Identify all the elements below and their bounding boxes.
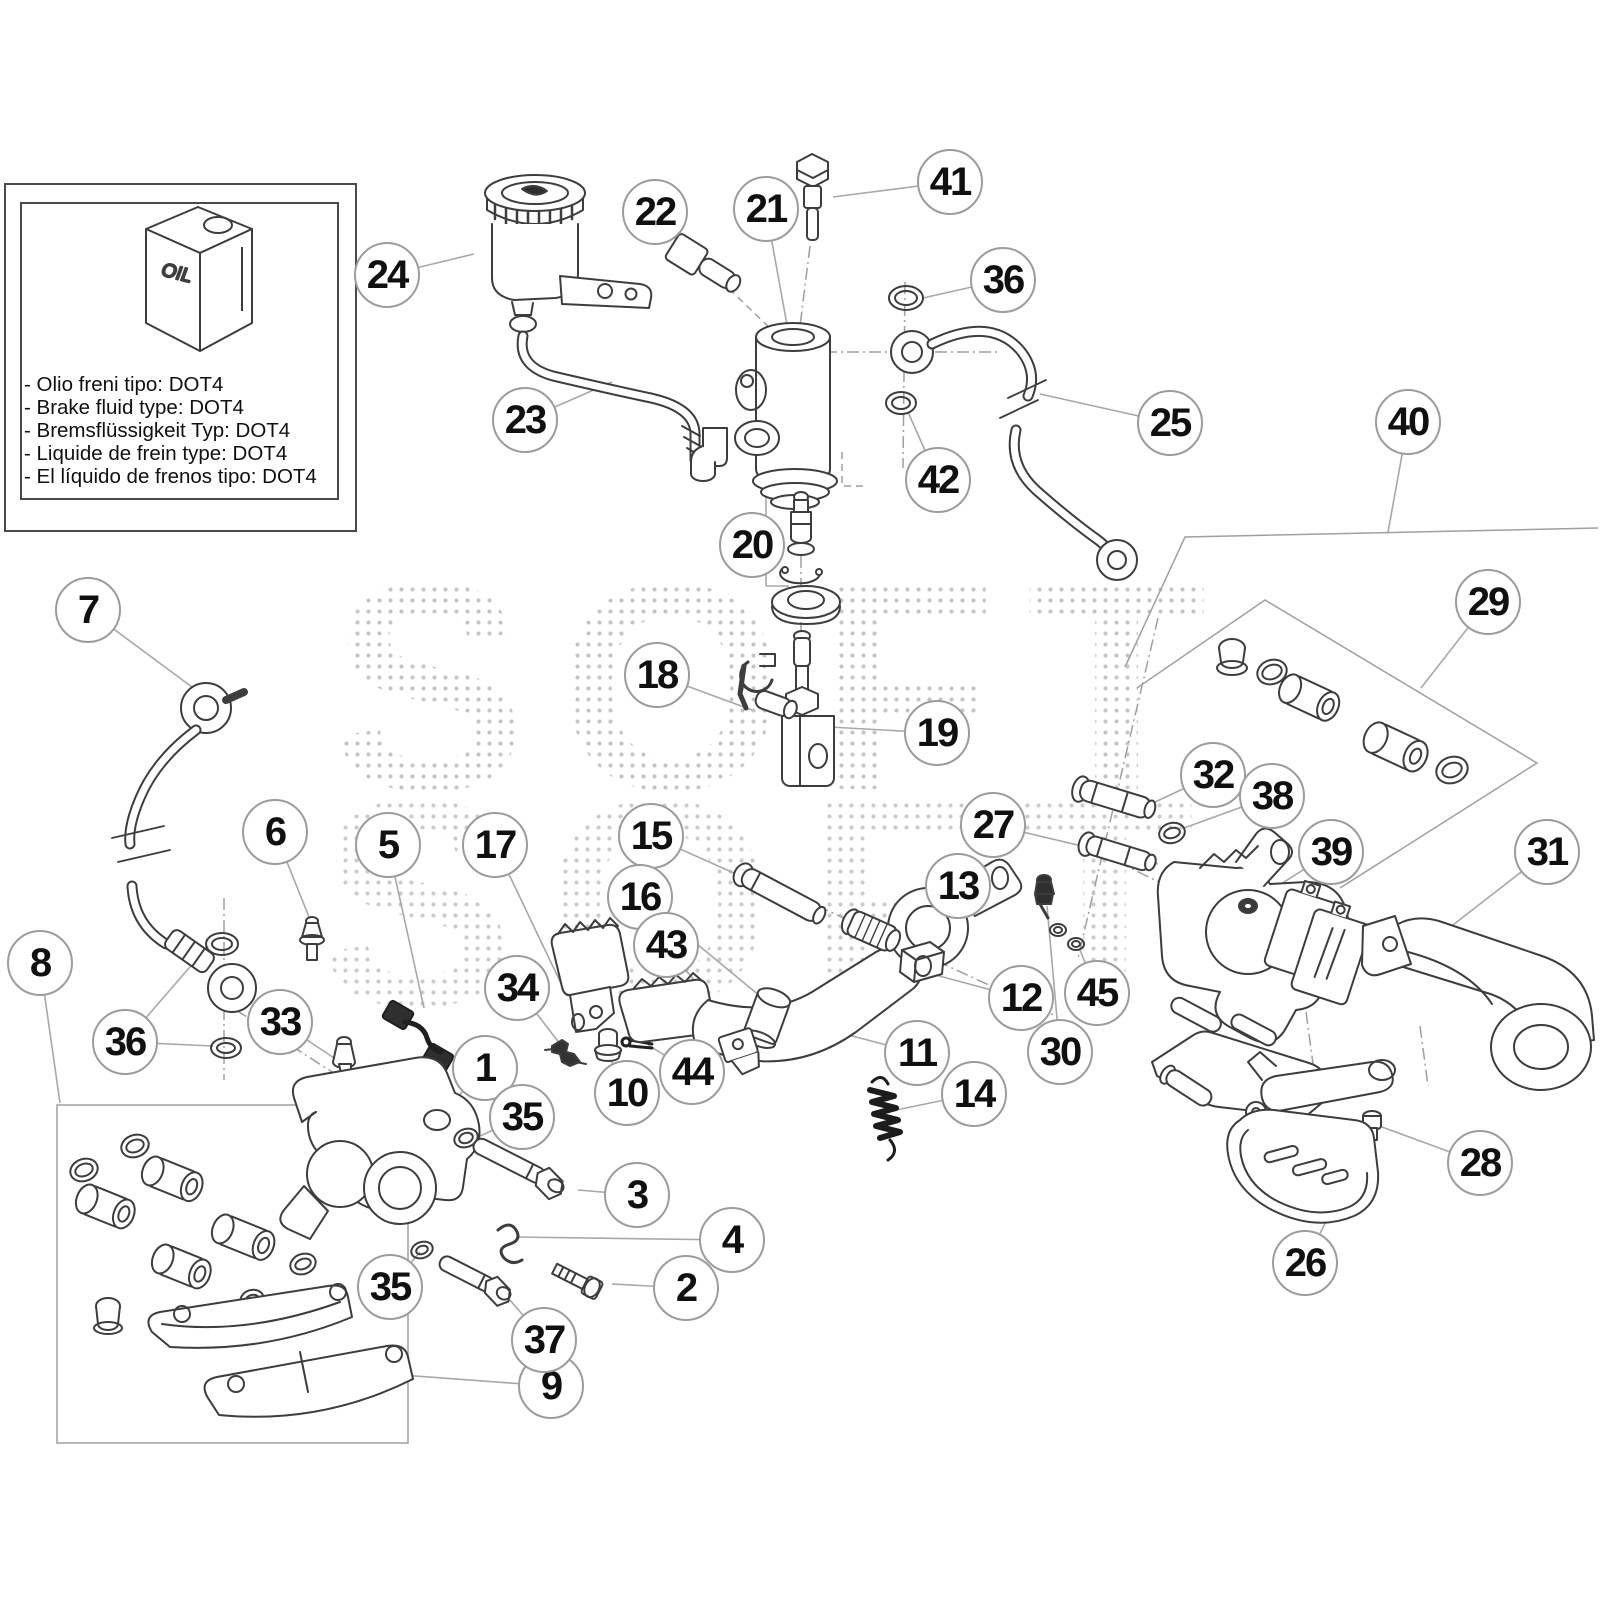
callout-35: 35 [489,1084,555,1150]
note-line: - El líquido de frenos tipo: DOT4 [24,465,324,488]
bolt-41 [797,154,828,240]
return-spring-14 [870,1077,900,1160]
callout-10: 10 [594,1060,660,1126]
callout-28: 28 [1447,1130,1513,1196]
callout-13: 13 [925,853,991,919]
callout-36: 36 [970,247,1036,313]
seal-kit-29-parts [1217,639,1471,788]
note-line: - Brake fluid type: DOT4 [24,396,324,419]
callout-26: 26 [1272,1230,1338,1296]
callout-12: 12 [988,965,1054,1031]
switch-30 [1035,875,1054,918]
pedal-tip-17 [552,918,629,1032]
callout-32: 32 [1180,742,1246,808]
callout-25: 25 [1137,390,1203,456]
callout-6: 6 [242,799,308,865]
callout-5: 5 [355,812,421,878]
callout-37: 37 [511,1307,577,1373]
washers-45 [1050,924,1084,950]
oil-can-icon: OIL [6,185,355,375]
callout-35: 35 [357,1254,423,1320]
callout-27: 27 [960,792,1026,858]
callout-43: 43 [633,912,699,978]
callout-34: 34 [484,955,550,1021]
seal-39 [1239,899,1257,913]
callout-45: 45 [1064,960,1130,1026]
washer-42 [886,392,916,414]
bleed-valve-6 [300,917,324,960]
callout-18: 18 [624,642,690,708]
callout-17: 17 [462,812,528,878]
callout-14: 14 [941,1061,1007,1127]
callout-23: 23 [492,387,558,453]
callout-41: 41 [917,149,983,215]
pivot-pin-10 [595,1029,621,1061]
callout-39: 39 [1298,819,1364,885]
fitting-22 [664,233,746,300]
nut-12 [900,942,944,982]
kit-box-40 [1125,528,1598,667]
pivot-bolt-15 [730,860,830,928]
callout-29: 29 [1455,569,1521,635]
washer-36-left-upper [206,933,238,955]
callout-7: 7 [55,577,121,643]
callout-33: 33 [247,989,313,1055]
washer-36-top [889,286,923,310]
callout-36: 36 [92,1009,158,1075]
callout-31: 31 [1514,819,1580,885]
r-clip-4 [498,1225,522,1263]
callout-22: 22 [622,179,688,245]
callout-15: 15 [618,803,684,869]
callout-30: 30 [1027,1019,1093,1085]
torque-arm-31 [1362,916,1594,1090]
callout-24: 24 [354,242,420,308]
callout-40: 40 [1375,389,1441,455]
front-caliper [280,1037,479,1239]
note-line: - Bremsflüssigkeit Typ: DOT4 [24,419,324,442]
callout-42: 42 [905,447,971,513]
callout-3: 3 [604,1162,670,1228]
clip-34 [545,1040,586,1066]
note-line: - Liquide de frein type: DOT4 [24,442,324,465]
bolt-2 [550,1260,604,1301]
callout-11: 11 [884,1020,950,1086]
oring-35-lower [409,1239,435,1262]
callout-44: 44 [659,1039,725,1105]
oring-38 [1157,820,1187,846]
front-brake-hose [112,683,256,1012]
callout-2: 2 [653,1255,719,1321]
clip-18 [740,654,799,720]
note-line: - Olio freni tipo: DOT4 [24,373,324,396]
callout-19: 19 [904,700,970,766]
callout-38: 38 [1239,763,1305,829]
master-cylinder [735,323,837,509]
reservoir-gasket [510,316,536,332]
elbow-fitting [682,426,727,481]
washer-36-left-lower [211,1038,241,1058]
diagram-stage: SOFT SOFT [0,0,1600,1600]
note-text: - Olio freni tipo: DOT4- Brake fluid typ… [24,373,324,488]
callout-21: 21 [733,176,799,242]
pin-32 [1069,774,1158,824]
note-box: OIL - Olio freni tipo: DOT4- Brake fluid… [4,183,357,532]
callout-8: 8 [7,930,73,996]
callout-20: 20 [719,512,785,578]
pin-27 [1076,830,1159,876]
callout-4: 4 [699,1207,765,1273]
